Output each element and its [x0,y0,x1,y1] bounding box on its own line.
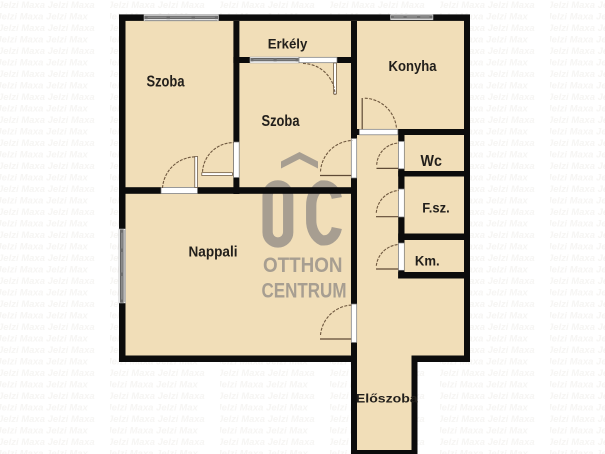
svg-text:Szoba: Szoba [262,113,300,130]
svg-text:Előszoba: Előszoba [356,392,418,406]
svg-text:Nappali: Nappali [189,243,238,260]
svg-text:CENTRUM: CENTRUM [262,278,347,302]
svg-text:OTTHON: OTTHON [263,253,343,277]
svg-text:F.sz.: F.sz. [422,201,449,216]
svg-text:Km.: Km. [415,254,440,269]
svg-text:Szoba: Szoba [147,74,185,91]
svg-text:Erkély: Erkély [268,36,308,52]
svg-text:Wc: Wc [421,153,443,170]
svg-text:Konyha: Konyha [389,58,438,75]
